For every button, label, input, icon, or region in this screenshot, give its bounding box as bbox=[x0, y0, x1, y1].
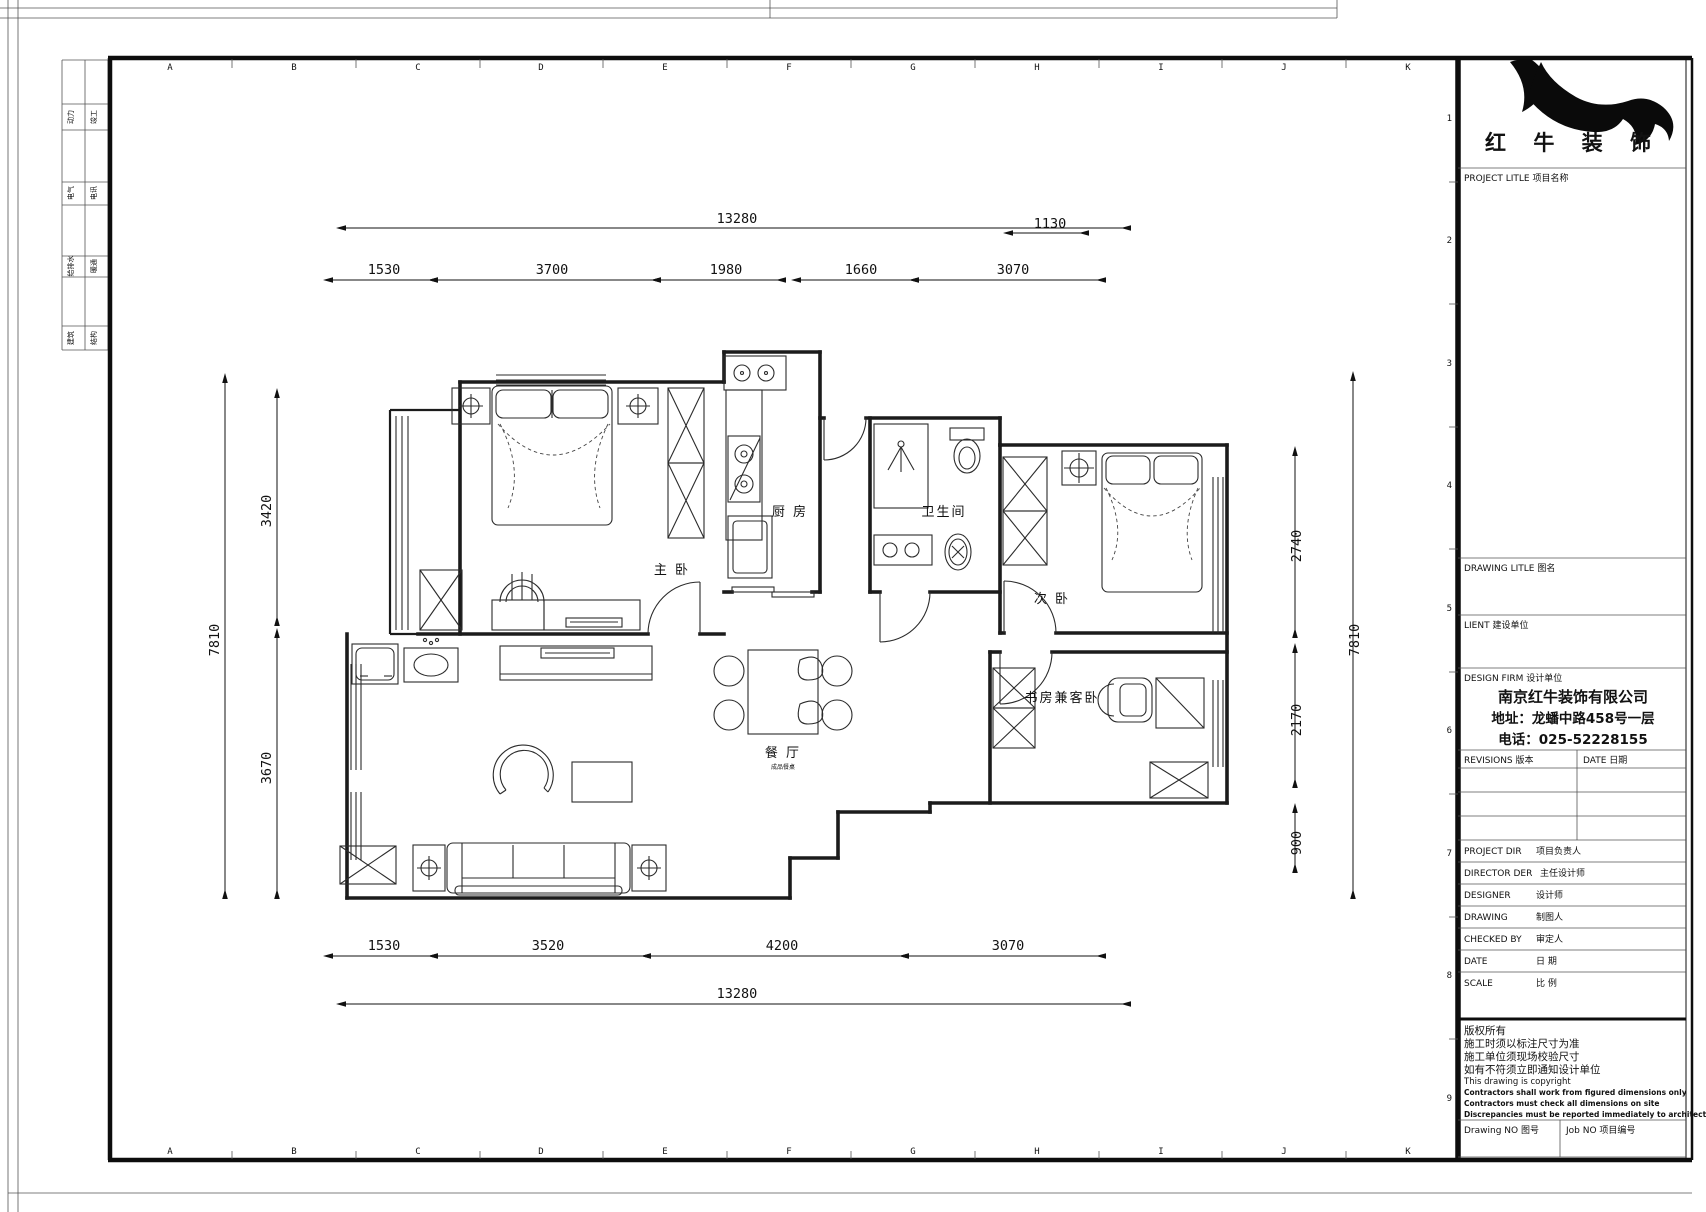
checked-by-label-cn: 审定人 bbox=[1536, 933, 1563, 945]
grid-number: 6 bbox=[1447, 726, 1452, 736]
drawing-by-label-cn: 制图人 bbox=[1536, 911, 1563, 923]
design-firm-label: DESIGN FIRM 设计单位 bbox=[1464, 672, 1562, 684]
grid-letter: G bbox=[910, 63, 915, 73]
room-label-bedroom2: 次 卧 bbox=[1034, 591, 1070, 607]
dim: 1660 bbox=[845, 262, 878, 278]
grid-number: 7 bbox=[1447, 849, 1452, 859]
grid-letter: J bbox=[1281, 1147, 1286, 1157]
grid-letter: D bbox=[538, 1147, 543, 1157]
date-label: DATE bbox=[1464, 957, 1488, 967]
copyright-line: Discrepancies must be reported immediate… bbox=[1464, 1110, 1706, 1119]
grid-letter: F bbox=[786, 1147, 791, 1157]
dim-left-total: 7810 bbox=[207, 624, 223, 657]
director-label-cn: 主任设计师 bbox=[1540, 867, 1585, 879]
dimensions: 13280 1130 1530 3700 1980 1660 3070 1530… bbox=[207, 211, 1363, 1004]
grid-letter: A bbox=[167, 63, 173, 73]
title-block: 红 牛 装 饰 PROJECT LITLE 项目名称 DRAWING LITLE… bbox=[1458, 59, 1706, 1157]
dim: 900 bbox=[1289, 831, 1305, 855]
grid-letter: H bbox=[1034, 63, 1039, 73]
project-dir-label: PROJECT DIR bbox=[1464, 847, 1522, 857]
dim-top-offset: 1130 bbox=[1034, 216, 1067, 232]
director-label: DIRECTOR DER bbox=[1464, 869, 1532, 879]
checked-by-label: CHECKED BY bbox=[1464, 935, 1522, 945]
dim-right-total: 7810 bbox=[1347, 624, 1363, 657]
floorplan-drawing: 动力 竣工 电气 电讯 给排水 暖通 建筑 结构 A B C D E F G H… bbox=[0, 0, 1706, 1212]
study-wardrobe-bottom bbox=[1150, 762, 1208, 798]
grid-letter: H bbox=[1034, 1147, 1039, 1157]
bedroom2-wardrobe bbox=[1003, 457, 1047, 565]
client-label: LIENT 建设单位 bbox=[1464, 619, 1528, 631]
discipline-label: 电气 bbox=[66, 186, 75, 200]
discipline-label: 结构 bbox=[89, 331, 98, 345]
page-border-lines bbox=[0, 0, 1692, 1212]
furniture bbox=[340, 356, 1208, 895]
copyright-line: 施工时须以标注尺寸为准 bbox=[1464, 1037, 1580, 1050]
fridge bbox=[728, 516, 772, 578]
grid-letter: K bbox=[1405, 63, 1411, 73]
dim: 1530 bbox=[368, 262, 401, 278]
grid-letter: B bbox=[291, 1147, 296, 1157]
dim: 3070 bbox=[997, 262, 1030, 278]
washbasin bbox=[945, 534, 971, 570]
copyright-line: This drawing is copyright bbox=[1463, 1077, 1571, 1087]
grid-letter: I bbox=[1158, 63, 1163, 73]
ceiling-lamp-symbol bbox=[1062, 451, 1096, 485]
dim: 1980 bbox=[710, 262, 743, 278]
grid-number: 4 bbox=[1447, 481, 1452, 491]
grid-number: 9 bbox=[1447, 1094, 1452, 1104]
dresser bbox=[492, 572, 640, 630]
sofa bbox=[447, 843, 630, 895]
bath-door bbox=[880, 592, 930, 642]
kitchen-sliding-door bbox=[732, 587, 814, 597]
copyright-block: 版权所有 施工时须以标注尺寸为准 施工单位须现场校验尺寸 如有不符须立即通知设计… bbox=[1463, 1024, 1706, 1119]
project-title-label: PROJECT LITLE 项目名称 bbox=[1464, 172, 1568, 184]
designer-label-cn: 设计师 bbox=[1536, 889, 1563, 901]
grid-letter: F bbox=[786, 63, 791, 73]
scale-label-cn: 比 例 bbox=[1536, 977, 1557, 989]
study-cabinet bbox=[1156, 678, 1204, 728]
discipline-label: 动力 bbox=[66, 110, 75, 124]
dining-note: 成品餐桌 bbox=[771, 763, 795, 771]
bedroom2-door bbox=[1004, 581, 1056, 633]
firm-phone: 电话：025-52228155 bbox=[1498, 731, 1647, 748]
date-label-cn: 日 期 bbox=[1536, 956, 1557, 967]
room-label-study: 书房兼客卧 bbox=[1024, 690, 1099, 706]
drawing-title-label: DRAWING LITLE 图名 bbox=[1464, 562, 1555, 574]
grid-letter: E bbox=[662, 1147, 667, 1157]
grid-number: 5 bbox=[1447, 604, 1452, 614]
washing-machine bbox=[352, 644, 398, 684]
copyright-line: 如有不符须立即通知设计单位 bbox=[1464, 1063, 1601, 1076]
dim: 3420 bbox=[259, 495, 275, 528]
grid-letter: K bbox=[1405, 1147, 1411, 1157]
discipline-label: 竣工 bbox=[89, 110, 98, 124]
copyright-line: Contractors shall work from figured dime… bbox=[1464, 1088, 1687, 1097]
sofa-side-table-left bbox=[413, 845, 445, 891]
grid-letters-top: A B C D E F G H I J K bbox=[167, 59, 1411, 73]
bedroom2-bed bbox=[1102, 453, 1202, 592]
dim: 1530 bbox=[368, 938, 401, 954]
drawing-no-label: Drawing NO 图号 bbox=[1464, 1125, 1539, 1136]
dim: 3520 bbox=[532, 938, 565, 954]
firm-name: 南京红牛装饰有限公司 bbox=[1498, 688, 1648, 706]
room-label-bath: 卫生间 bbox=[921, 505, 966, 520]
grid-letter: B bbox=[291, 63, 296, 73]
study-wardrobe-left bbox=[993, 668, 1035, 748]
walls bbox=[347, 352, 1227, 898]
dim: 2740 bbox=[1289, 530, 1305, 563]
grid-letter: G bbox=[910, 1147, 915, 1157]
shower bbox=[874, 424, 928, 508]
job-no-label: Job NO 项目编号 bbox=[1565, 1124, 1635, 1136]
discipline-label: 建筑 bbox=[66, 331, 75, 345]
nightstand-right bbox=[618, 388, 658, 424]
coffee-table bbox=[572, 762, 632, 802]
grid-letter: C bbox=[415, 1147, 420, 1157]
dim: 4200 bbox=[766, 938, 799, 954]
cad-sheet: 动力 竣工 电气 电讯 给排水 暖通 建筑 结构 A B C D E F G H… bbox=[0, 0, 1706, 1212]
firm-address: 地址：龙蟠中路458号一层 bbox=[1491, 710, 1654, 727]
discipline-table: 动力 竣工 电气 电讯 给排水 暖通 建筑 结构 bbox=[62, 60, 108, 350]
room-label-kitchen: 厨 房 bbox=[772, 504, 808, 520]
grid-letter: I bbox=[1158, 1147, 1163, 1157]
designer-label: DESIGNER bbox=[1464, 891, 1511, 901]
armchair bbox=[493, 745, 553, 794]
grid-number: 2 bbox=[1447, 236, 1452, 246]
master-door bbox=[648, 582, 700, 634]
grid-letters-bottom: A B C D E F G H I J K bbox=[167, 1147, 1411, 1159]
dim: 2170 bbox=[1289, 704, 1305, 737]
bath-cabinet bbox=[874, 535, 932, 565]
dim: 3670 bbox=[259, 752, 275, 785]
scale-label: SCALE bbox=[1464, 979, 1493, 989]
room-labels: 主 卧 厨 房 卫生间 次 卧 书房兼客卧 餐 厅 成品餐桌 bbox=[654, 504, 1100, 771]
grid-number: 8 bbox=[1447, 971, 1452, 981]
discipline-label: 暖通 bbox=[89, 259, 98, 273]
grid-letter: C bbox=[415, 63, 420, 73]
grid-letter: E bbox=[662, 63, 667, 73]
room-label-master: 主 卧 bbox=[654, 563, 690, 578]
sofa-side-table-right bbox=[632, 845, 666, 891]
dining-table bbox=[714, 650, 852, 734]
discipline-label: 给排水 bbox=[66, 256, 75, 277]
laundry-sink bbox=[404, 638, 458, 682]
kitchen-sink bbox=[724, 356, 786, 390]
stove bbox=[728, 436, 760, 502]
grid-number: 1 bbox=[1447, 114, 1452, 124]
tv-console bbox=[500, 646, 652, 680]
dim-bottom-total: 13280 bbox=[717, 986, 758, 1002]
master-wardrobe bbox=[668, 388, 704, 538]
date-col-label: DATE 日期 bbox=[1583, 755, 1627, 766]
kitchen-counter bbox=[726, 390, 762, 540]
dim-top-total: 13280 bbox=[717, 211, 758, 227]
entry-door bbox=[824, 418, 866, 460]
copyright-line: 版权所有 bbox=[1464, 1024, 1506, 1037]
grid-number: 3 bbox=[1447, 359, 1452, 369]
room-label-dining: 餐 厅 bbox=[765, 745, 801, 761]
dim: 3070 bbox=[992, 938, 1025, 954]
grid-letter: D bbox=[538, 63, 543, 73]
nightstand-left bbox=[452, 388, 490, 424]
doors bbox=[648, 418, 1056, 704]
project-dir-label-cn: 项目负责人 bbox=[1536, 845, 1581, 857]
grid-letter: J bbox=[1281, 63, 1286, 73]
balcony-cabinet bbox=[420, 570, 462, 630]
master-bed bbox=[492, 386, 612, 525]
drawing-frame bbox=[108, 58, 1692, 1160]
grid-letter: A bbox=[167, 1147, 173, 1157]
brand-name: 红 牛 装 饰 bbox=[1485, 131, 1661, 155]
discipline-label: 电讯 bbox=[89, 186, 98, 200]
study-armchair bbox=[1098, 678, 1152, 722]
copyright-line: Contractors must check all dimensions on… bbox=[1464, 1099, 1659, 1108]
revisions-label: REVISIONS 版本 bbox=[1464, 754, 1534, 766]
toilet bbox=[950, 428, 984, 473]
copyright-line: 施工单位须现场校验尺寸 bbox=[1464, 1050, 1580, 1063]
drawing-by-label: DRAWING bbox=[1464, 913, 1508, 923]
dim: 3700 bbox=[536, 262, 569, 278]
